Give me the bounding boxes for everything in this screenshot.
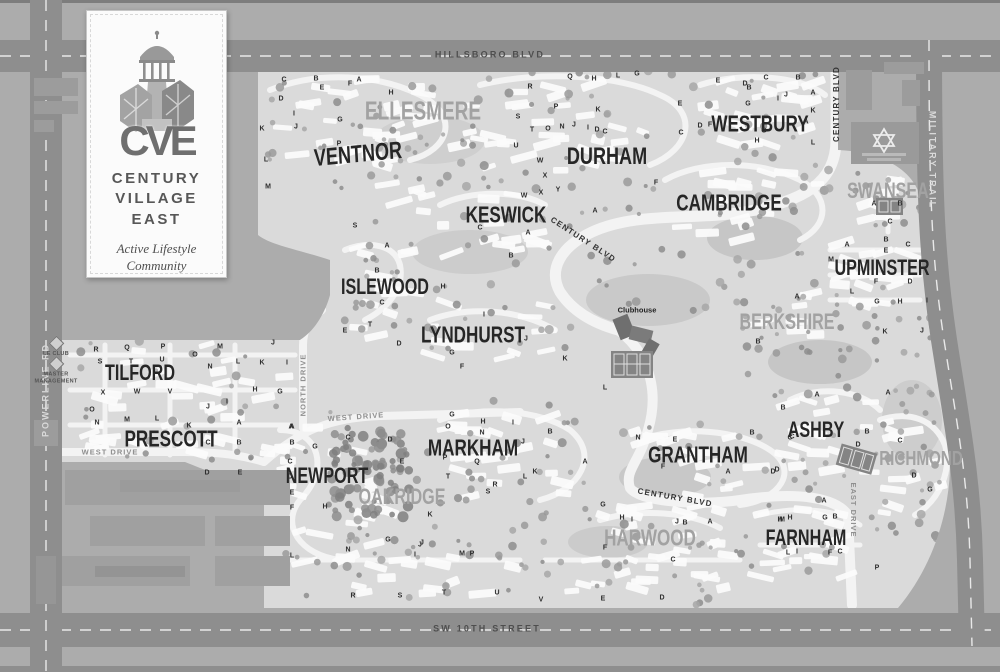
temple-parcel xyxy=(851,122,919,164)
tagline-line1: Active Lifestyle xyxy=(117,241,197,256)
tennis-courts-clubhouse xyxy=(611,351,653,378)
scan-edge-top xyxy=(0,0,1000,3)
community-tagline: Active Lifestyle Community xyxy=(117,240,197,275)
community-name-line2: VILLAGE xyxy=(115,190,198,207)
tennis-courts-swansea xyxy=(876,198,903,215)
community-name: CENTURY VILLAGE EAST xyxy=(112,169,201,230)
logo-card: CVE CENTURY VILLAGE EAST Active Lifestyl… xyxy=(86,10,227,278)
sw-10th-street-road xyxy=(0,613,1000,647)
community-map: ELLESMEREVENTNORDURHAMWESTBURYCAMBRIDGEK… xyxy=(0,0,1000,672)
tagline-line2: Community xyxy=(127,258,187,273)
scan-edge-bottom xyxy=(0,666,1000,672)
community-name-line3: EAST xyxy=(131,211,181,228)
cve-monogram: CVE xyxy=(119,117,193,165)
community-name-line1: CENTURY xyxy=(112,170,201,187)
